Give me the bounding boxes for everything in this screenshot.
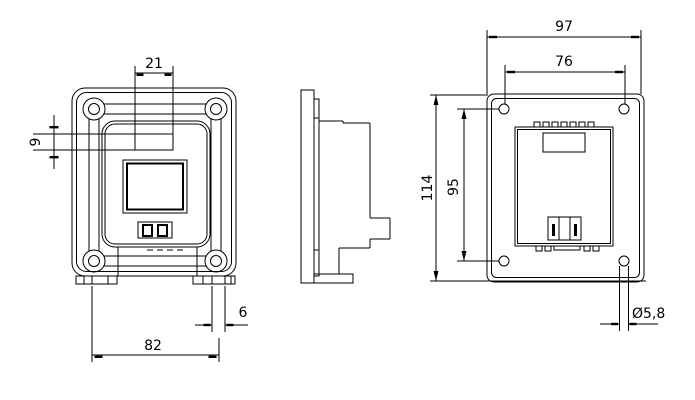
dim-bottom-span-label: 82 [144,338,162,354]
back-mounting-holes [499,104,629,266]
dim-hole-spacing-vertical-label: 95 [446,178,462,196]
front-label-window [135,134,173,150]
front-bottom-feet [76,276,235,284]
front-latch [138,222,172,238]
back-dimensions: 97 76 114 95 Ø5,8 [420,19,665,331]
dim-window-width: 21 [135,56,173,134]
dim-hole-diameter-label: Ø5,8 [632,306,665,322]
dim-window-width-label: 21 [145,56,163,72]
dim-overall-height-label: 114 [420,175,436,202]
back-latch [548,217,581,240]
dim-bottom-span: 82 [92,286,219,362]
drawing-svg: 21 9 82 6 [0,0,695,400]
front-socket-opening [123,160,187,213]
back-top-fins [534,122,594,127]
dim-window-height: 9 [28,115,135,169]
front-cover-outline [102,121,210,247]
side-flange-plate [301,90,314,283]
dim-tab-width: 6 [195,286,248,332]
back-housing [515,127,613,246]
dim-hole-diameter: Ø5,8 [600,266,665,331]
side-view [301,90,390,283]
dim-tab-width-label: 6 [239,305,248,321]
side-housing-body [319,121,390,274]
technical-drawing-page: 21 9 82 6 [0,0,695,400]
back-bottom-fins [536,246,599,251]
back-plate-inner-outline [492,99,640,278]
side-bottom-foot [314,274,353,283]
front-plate-inner-outline [77,93,232,272]
back-view [487,94,644,282]
back-label-window [543,133,585,152]
dim-window-height-label: 9 [28,138,44,147]
dim-overall-width-label: 97 [555,19,573,35]
dim-hole-spacing-horizontal: 76 [505,54,625,104]
side-gasket-joints [314,118,319,250]
side-gasket [314,99,319,276]
front-cover-inner-outline [105,124,207,244]
front-view [72,88,236,284]
dim-hole-spacing-horizontal-label: 76 [555,54,573,70]
